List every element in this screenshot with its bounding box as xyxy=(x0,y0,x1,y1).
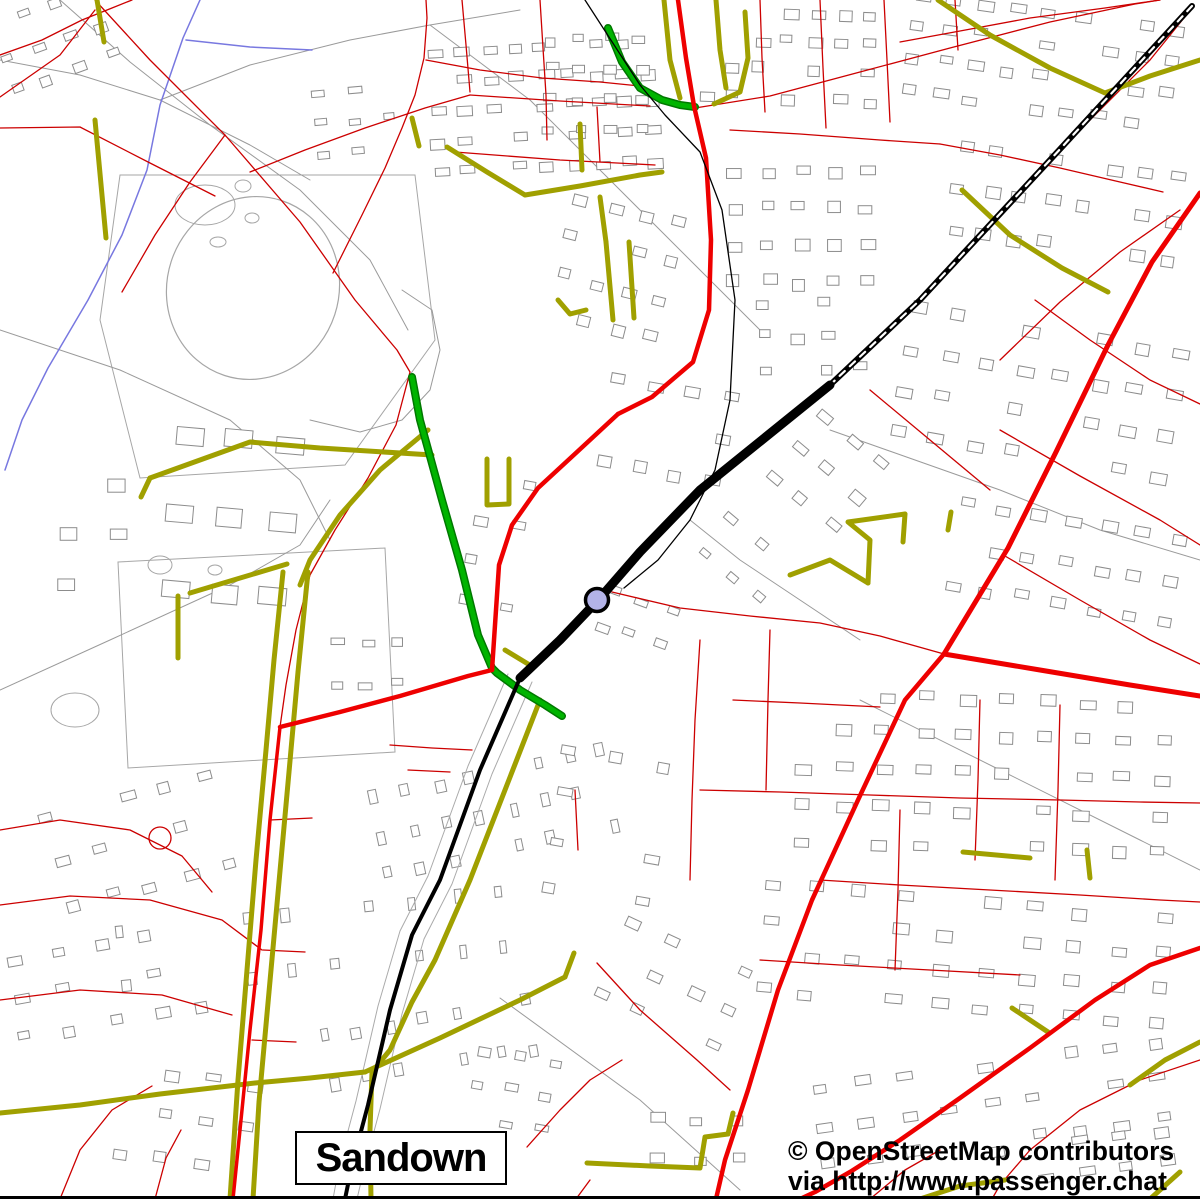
attribution-line-1: © OpenStreetMap contributors xyxy=(788,1136,1174,1166)
streams-layer xyxy=(5,0,312,470)
building-cluster xyxy=(4,922,208,1046)
building-cluster xyxy=(543,190,688,346)
map-viewport[interactable]: Sandown © OpenStreetMap contributors via… xyxy=(0,0,1200,1199)
building-cluster xyxy=(726,166,875,291)
building-cluster xyxy=(115,885,508,999)
building-cluster xyxy=(331,638,403,690)
map-attribution: © OpenStreetMap contributors via http://… xyxy=(788,1136,1174,1196)
building-cluster xyxy=(38,769,237,915)
building-cluster xyxy=(592,914,754,1052)
attribution-line-2: via http://www.passenger.chat xyxy=(788,1166,1174,1196)
building-cluster xyxy=(695,511,793,605)
building-cluster xyxy=(466,1044,563,1136)
place-label: Sandown xyxy=(316,1136,487,1181)
station-marker[interactable] xyxy=(586,589,609,612)
building-cluster xyxy=(366,741,621,882)
building-cluster xyxy=(700,6,879,109)
building-cluster xyxy=(536,743,676,911)
place-label-box: Sandown xyxy=(295,1131,507,1185)
map-canvas[interactable] xyxy=(0,0,1200,1199)
building-cluster xyxy=(888,300,1191,486)
building-cluster xyxy=(792,686,1173,861)
building-cluster xyxy=(58,479,127,590)
building-cluster xyxy=(756,877,1174,1032)
